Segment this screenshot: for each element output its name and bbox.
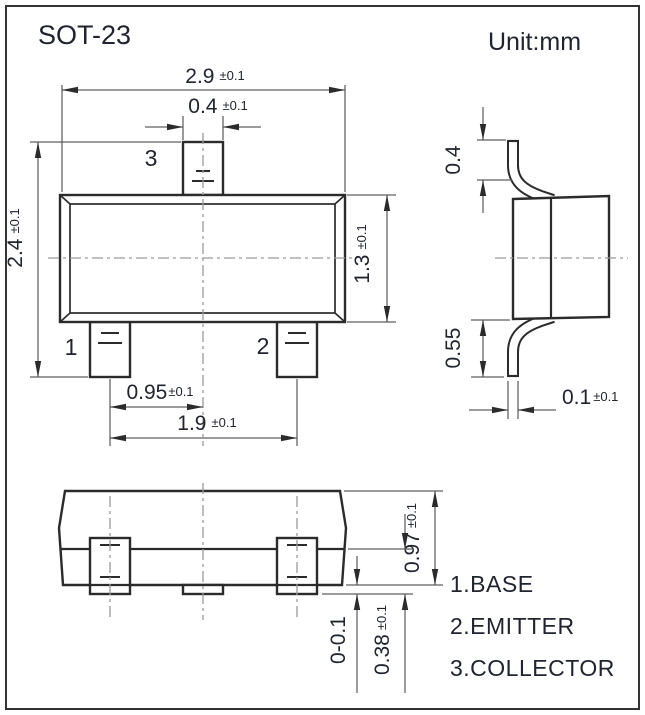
dim-pin-pitch-label: 1.9±0.1 <box>177 412 236 435</box>
dim-lead-top-height-label: 0.4 <box>442 145 465 175</box>
dim-lead-thickness-label: 0.1±0.1 <box>562 386 618 409</box>
dim-lead-thickness: 0.1±0.1 <box>469 381 618 419</box>
legend-pin2: 2.EMITTER <box>450 613 575 639</box>
dim-pin3-width-label: 0.4±0.1 <box>188 95 247 118</box>
dim-lead-bottom-height: 0.55 <box>442 320 510 377</box>
dim-body-depth-label: 1.3±0.1 <box>351 224 374 283</box>
package-drawing-svg: SOT-23 Unit:mm 3 1 2 <box>0 0 645 715</box>
pin-legend: 1.BASE 2.EMITTER 3.COLLECTOR <box>450 571 615 681</box>
dim-lead-top-height: 0.4 <box>442 107 512 213</box>
dim-overall-width-label: 2.4±0.1 <box>4 208 27 267</box>
pin1-number: 1 <box>65 334 78 360</box>
drawing-page: SOT-23 Unit:mm 3 1 2 <box>0 0 645 715</box>
package-title: SOT-23 <box>38 20 131 50</box>
top-view-pin1 <box>90 322 130 377</box>
dim-body-depth: 1.3±0.1 <box>347 195 396 322</box>
dim-standoff-label: 0-0.1 <box>327 616 350 664</box>
top-view: 3 1 2 <box>48 133 357 446</box>
legend-pin1: 1.BASE <box>450 571 534 597</box>
side-view <box>495 140 628 377</box>
front-view <box>59 483 346 620</box>
legend-pin3: 3.COLLECTOR <box>450 655 615 681</box>
pin3-number: 3 <box>145 145 158 171</box>
dim-pin-half-pitch-label: 0.95±0.1 <box>126 381 193 404</box>
pin2-number: 2 <box>257 333 270 359</box>
top-view-pin2 <box>277 322 317 377</box>
dim-body-width-label: 2.9±0.1 <box>185 65 244 88</box>
dim-lead-bottom-height-label: 0.55 <box>442 328 465 369</box>
dim-lead-foot-height-label: 0.38±0.1 <box>371 605 394 675</box>
unit-label: Unit:mm <box>488 28 581 56</box>
